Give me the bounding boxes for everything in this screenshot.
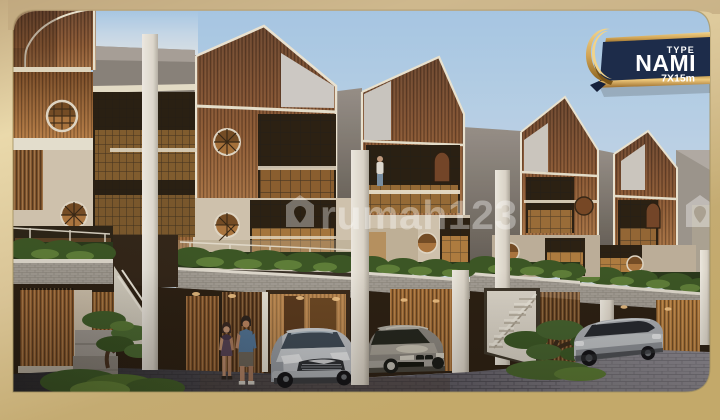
svg-text:rumah123: rumah123 (320, 192, 518, 238)
svg-text:7X15m: 7X15m (661, 73, 695, 85)
